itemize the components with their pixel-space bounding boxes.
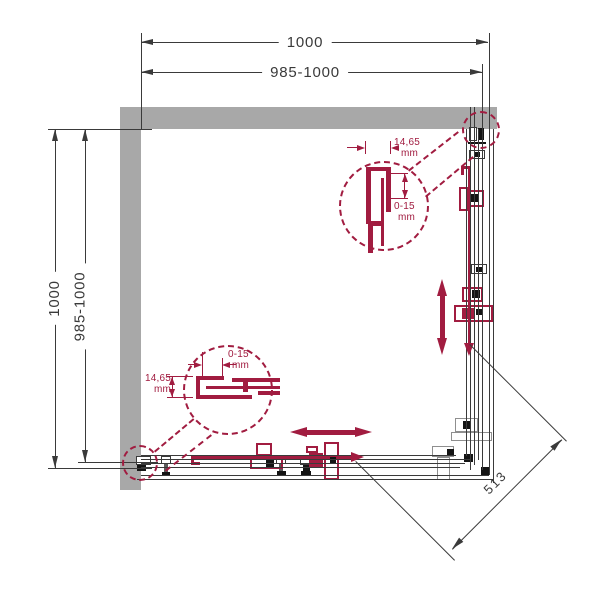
magnet-flange <box>437 457 450 480</box>
wall-left <box>120 107 141 490</box>
door-edge-arrow-icon <box>351 452 364 462</box>
drawing-canvas: 1000 985-1000 1000 985-1000 <box>0 0 600 600</box>
handle-fill <box>462 308 474 319</box>
detail-source-circle-top-right <box>462 111 500 149</box>
dim-label: 1000 <box>279 33 332 52</box>
frame-line <box>493 129 494 483</box>
dim-tick <box>365 141 366 154</box>
rail-line <box>141 455 456 456</box>
detail-connector <box>165 434 212 471</box>
arrow-up-icon <box>82 129 88 141</box>
wall-top <box>120 107 497 129</box>
slide-arrow-up-icon <box>437 279 447 296</box>
range-unit: mm <box>232 361 249 371</box>
detail-connector <box>154 418 194 452</box>
arrow-left-icon <box>141 39 153 45</box>
slide-arrow-left-icon <box>290 427 307 437</box>
rail-line <box>141 467 460 468</box>
arrow-right-icon <box>357 145 365 151</box>
ext-line-top <box>48 129 152 130</box>
frame-line <box>489 33 490 475</box>
arrow-right-icon <box>476 39 488 45</box>
profile-width-label: 14,65 <box>143 374 171 384</box>
rail-line <box>466 129 467 456</box>
arrow-down-icon <box>52 456 58 468</box>
dim-label: 985-1000 <box>71 263 90 349</box>
ext-line <box>141 33 142 129</box>
door-bracket <box>306 446 318 453</box>
dim-label: 985-1000 <box>262 63 348 82</box>
dim-line <box>347 147 357 148</box>
dim-label-box: 985-1000 <box>69 248 91 364</box>
slide-arrow-down-icon <box>437 338 447 355</box>
frame-line <box>141 475 489 476</box>
magnet-flange <box>451 432 492 441</box>
arrow-down-icon <box>82 450 88 462</box>
rail-line <box>470 107 471 470</box>
ext-line <box>469 344 567 442</box>
door-slide-arrow-vertical <box>440 296 445 338</box>
frame-line <box>137 479 493 480</box>
arrow-up-icon <box>52 129 58 141</box>
range-label: 0-15 <box>228 350 249 360</box>
arrow-right-icon <box>550 437 563 450</box>
rail-line <box>474 107 475 465</box>
detail-circle-top-right <box>339 161 429 251</box>
profile-width-unit: mm <box>152 385 171 395</box>
rail-line <box>141 463 465 464</box>
dim-label: 1000 <box>45 272 64 325</box>
range-label: 0-15 <box>394 202 415 212</box>
slide-arrow-right-icon <box>355 427 372 437</box>
profile-width-unit: mm <box>401 149 418 159</box>
arrow-left-icon <box>141 69 153 75</box>
profile-width-label: 14,65 <box>394 138 420 148</box>
arrow-left-icon <box>450 538 463 551</box>
rail-line <box>478 129 479 460</box>
arrow-right-icon <box>470 69 482 75</box>
dim-label-box: 1000 <box>43 240 65 356</box>
rail-line <box>141 459 470 460</box>
door-slide-arrow-horizontal <box>307 430 355 435</box>
range-unit: mm <box>398 213 415 223</box>
